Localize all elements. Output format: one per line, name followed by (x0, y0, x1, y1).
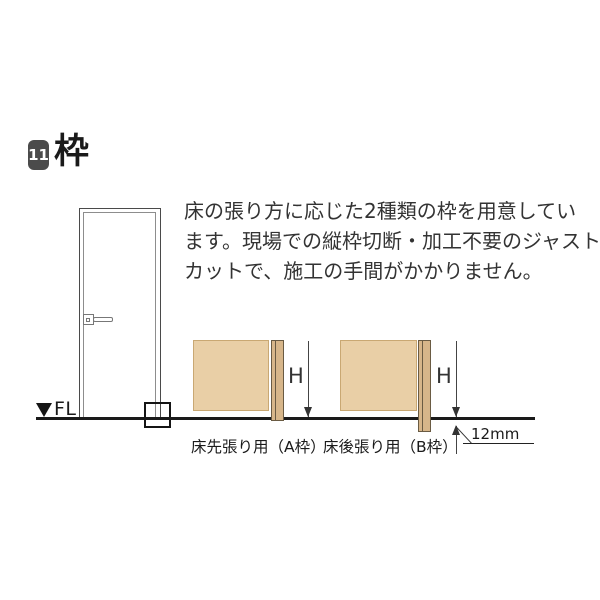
offset-dimension-label: 12mm (471, 427, 519, 442)
floor-line (36, 417, 535, 420)
down-arrow-icon (452, 407, 460, 417)
door-handle-lever (93, 317, 113, 322)
caption-frame-a: 床先張り用（A枠） (191, 440, 326, 456)
section-number-badge: 11 (28, 140, 49, 170)
frame-strip-b (418, 340, 431, 432)
wall-block-b (340, 340, 417, 411)
description-paragraph: 床の張り方に応じた2種類の枠を用意してい ます。現場での縦枠切断・加工不要のジャ… (184, 196, 594, 286)
description-line: ます。現場での縦枠切断・加工不要のジャスト (184, 226, 594, 256)
offset-label-underline (463, 443, 534, 444)
door-handle-keyhole (86, 318, 90, 322)
height-dimension-label-a: H (288, 366, 304, 387)
down-arrow-icon (304, 407, 312, 417)
detail-callout-box (144, 402, 171, 428)
offset-leader-line (456, 427, 472, 444)
height-dimension-line-a (308, 341, 309, 417)
height-dimension-label-b: H (436, 366, 452, 387)
description-line: カットで、施工の手間がかかりません。 (184, 256, 594, 286)
down-triangle-icon (36, 403, 52, 417)
frame-strip-a (271, 340, 284, 421)
height-dimension-line-b (456, 341, 457, 417)
section-title: 枠 (54, 133, 89, 172)
frame-strip-inner-line (422, 341, 423, 431)
caption-frame-b: 床後張り用（B枠） (323, 440, 458, 456)
description-line: 床の張り方に応じた2種類の枠を用意してい (184, 196, 594, 226)
wall-block-a (193, 340, 269, 411)
frame-strip-inner-line (275, 341, 276, 420)
page-background: 11 枠 床の張り方に応じた2種類の枠を用意してい ます。現場での縦枠切断・加工… (0, 0, 600, 600)
